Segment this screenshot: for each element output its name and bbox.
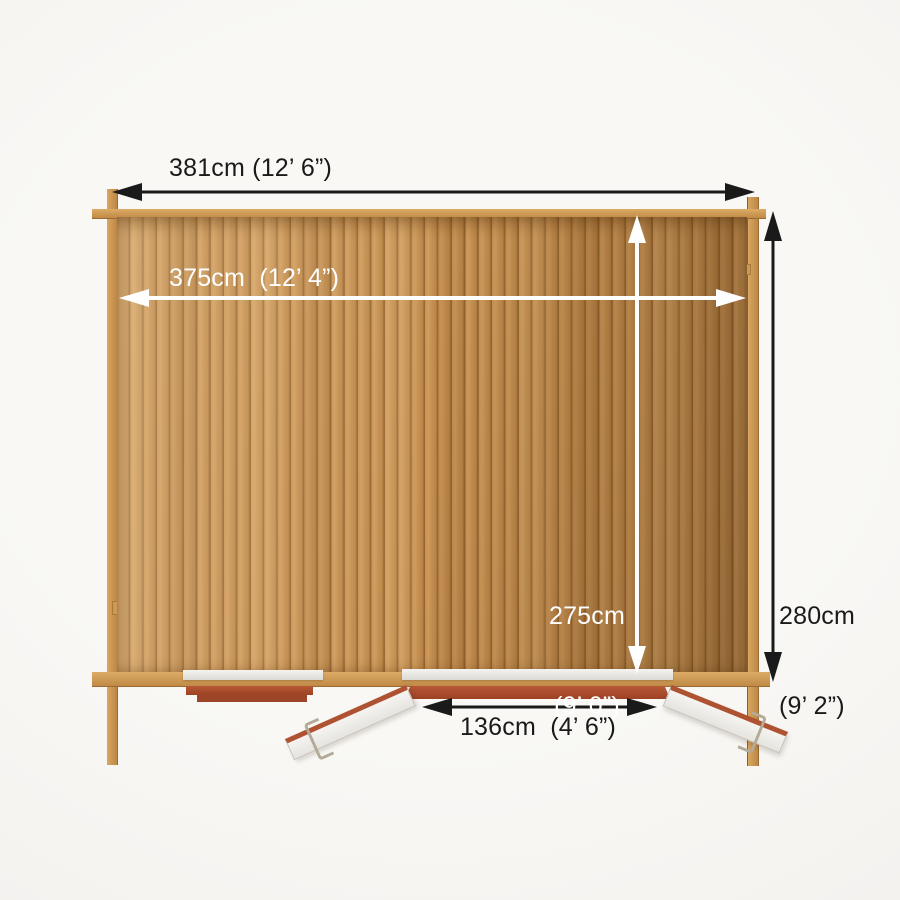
outer-width-label: 381cm (12’ 6”) (169, 153, 332, 183)
door-width-label: 136cm (4’ 6”) (438, 712, 638, 742)
front-window-frame (186, 686, 313, 695)
outer-depth-metric: 280cm (779, 601, 855, 631)
inner-width-label: 375cm (12’ 4”) (169, 263, 339, 293)
outer-depth-imperial: (9’ 2”) (779, 691, 855, 721)
front-window-frame-step (197, 695, 307, 702)
door-right-leaf (663, 685, 788, 754)
inner-depth-metric: 275cm (532, 601, 642, 631)
outer-width-arrow (112, 183, 755, 201)
door-handle-icon (303, 718, 334, 761)
inner-depth-label: 275cm (9’ 0”) (532, 541, 642, 781)
door-handle-icon (737, 711, 767, 754)
cabin-dimension-diagram: 381cm (12’ 6”) 375cm (12’ 4”) 275cm (9’ … (0, 0, 900, 900)
outer-depth-label: 280cm (9’ 2”) (779, 541, 855, 781)
front-window-sill (183, 670, 323, 680)
